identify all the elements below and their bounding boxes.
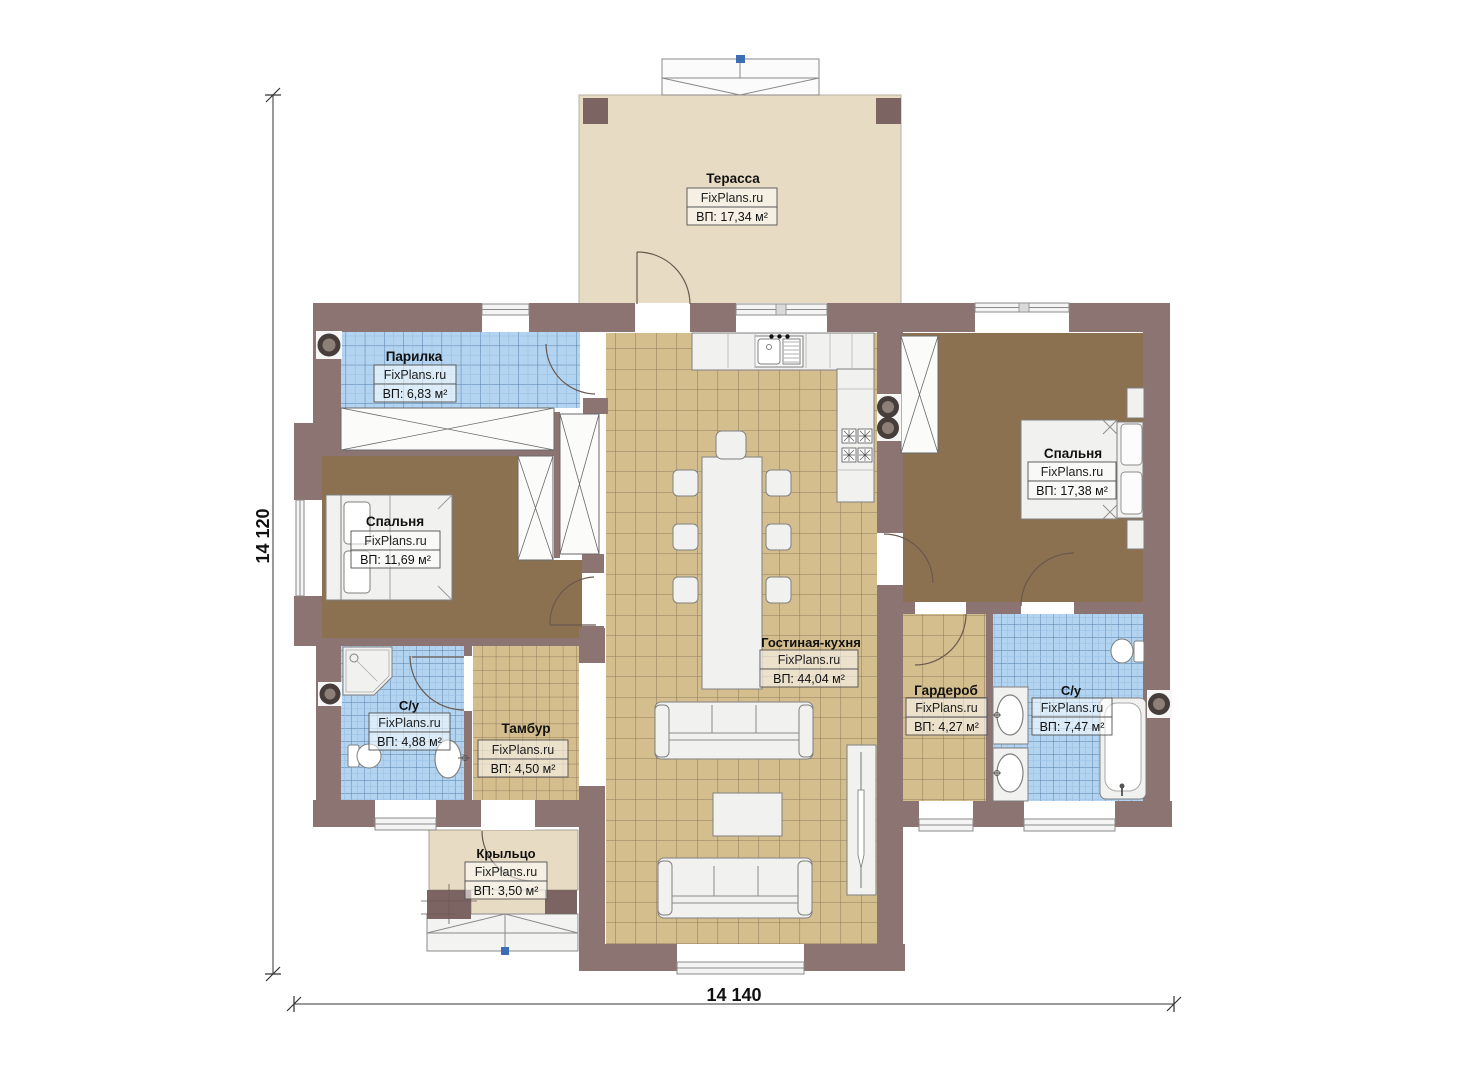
svg-text:14 140: 14 140 [706, 985, 761, 1005]
svg-text:ВП: 17,34 м²: ВП: 17,34 м² [696, 210, 768, 224]
svg-text:Крыльцо: Крыльцо [476, 846, 535, 861]
svg-text:Тамбур: Тамбур [502, 721, 551, 736]
svg-text:ВП: 11,69 м²: ВП: 11,69 м² [360, 553, 431, 567]
svg-text:FixPlans.ru: FixPlans.ru [701, 191, 764, 205]
svg-text:14 120: 14 120 [253, 508, 273, 563]
svg-text:FixPlans.ru: FixPlans.ru [384, 368, 447, 382]
svg-text:ВП: 6,83 м²: ВП: 6,83 м² [383, 387, 448, 401]
svg-text:ВП: 4,27 м²: ВП: 4,27 м² [914, 720, 979, 734]
svg-text:ВП: 4,88 м²: ВП: 4,88 м² [377, 735, 442, 749]
svg-text:FixPlans.ru: FixPlans.ru [778, 653, 841, 667]
svg-text:FixPlans.ru: FixPlans.ru [378, 716, 441, 730]
svg-text:Спальня: Спальня [1044, 446, 1102, 461]
svg-text:FixPlans.ru: FixPlans.ru [915, 701, 978, 715]
svg-text:ВП: 7,47 м²: ВП: 7,47 м² [1040, 720, 1105, 734]
svg-text:ВП: 3,50 м²: ВП: 3,50 м² [474, 884, 539, 898]
svg-text:Спальня: Спальня [366, 514, 424, 529]
svg-text:С/у: С/у [399, 698, 420, 713]
svg-text:Гардероб: Гардероб [914, 683, 978, 698]
svg-text:ВП: 44,04 м²: ВП: 44,04 м² [773, 672, 845, 686]
svg-text:Парилка: Парилка [386, 349, 443, 364]
svg-text:Терасса: Терасса [706, 171, 760, 186]
svg-text:FixPlans.ru: FixPlans.ru [1041, 701, 1104, 715]
svg-text:С/у: С/у [1061, 683, 1082, 698]
svg-text:ВП: 17,38 м²: ВП: 17,38 м² [1036, 484, 1108, 498]
svg-text:FixPlans.ru: FixPlans.ru [475, 865, 538, 879]
svg-text:ВП: 4,50 м²: ВП: 4,50 м² [491, 762, 556, 776]
svg-text:Гостиная-кухня: Гостиная-кухня [761, 635, 861, 650]
svg-text:FixPlans.ru: FixPlans.ru [492, 743, 555, 757]
svg-text:FixPlans.ru: FixPlans.ru [1041, 465, 1104, 479]
svg-text:FixPlans.ru: FixPlans.ru [364, 534, 427, 548]
